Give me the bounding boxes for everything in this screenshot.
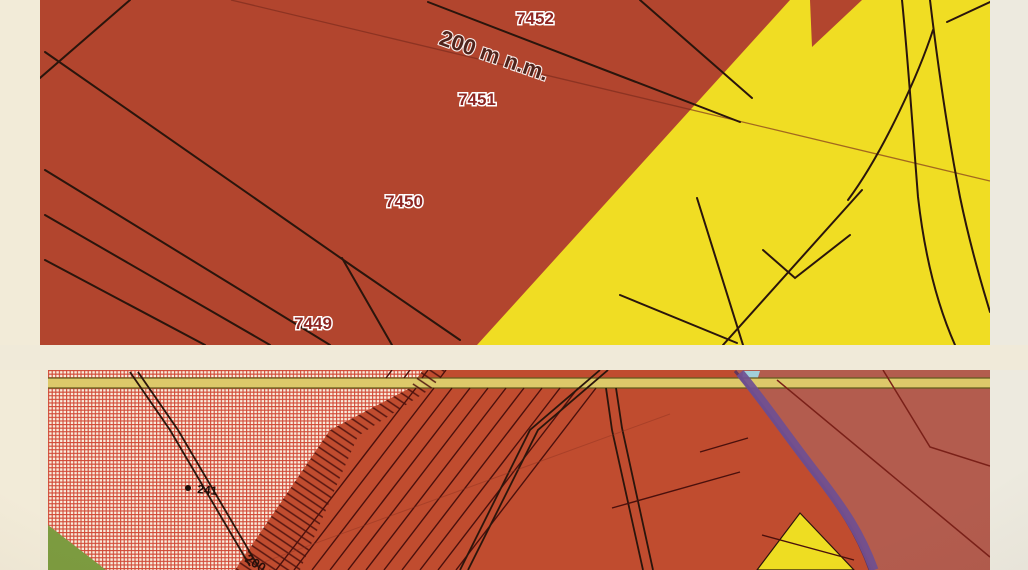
survey-point-dot bbox=[185, 485, 191, 491]
parcel-label-7450: 7450 bbox=[385, 192, 423, 211]
sheet-separator-band bbox=[0, 345, 1028, 370]
upper-map-sheet: 7452 200 m n.m. 7451 7450 7449 bbox=[40, 0, 990, 345]
map-photo: 7452 200 m n.m. 7451 7450 7449 bbox=[0, 0, 1028, 570]
yellow-road-band bbox=[48, 378, 990, 388]
parcel-label-7451: 7451 bbox=[458, 90, 496, 109]
parcel-label-7449: 7449 bbox=[294, 314, 332, 333]
point-label-241: 241 bbox=[197, 482, 219, 498]
paper-margin-left bbox=[0, 0, 40, 570]
paper-margin-right bbox=[990, 0, 1028, 570]
lower-map-sheet: 241 200 m n.m. bbox=[48, 370, 990, 570]
parcel-label-7452: 7452 bbox=[516, 9, 554, 28]
